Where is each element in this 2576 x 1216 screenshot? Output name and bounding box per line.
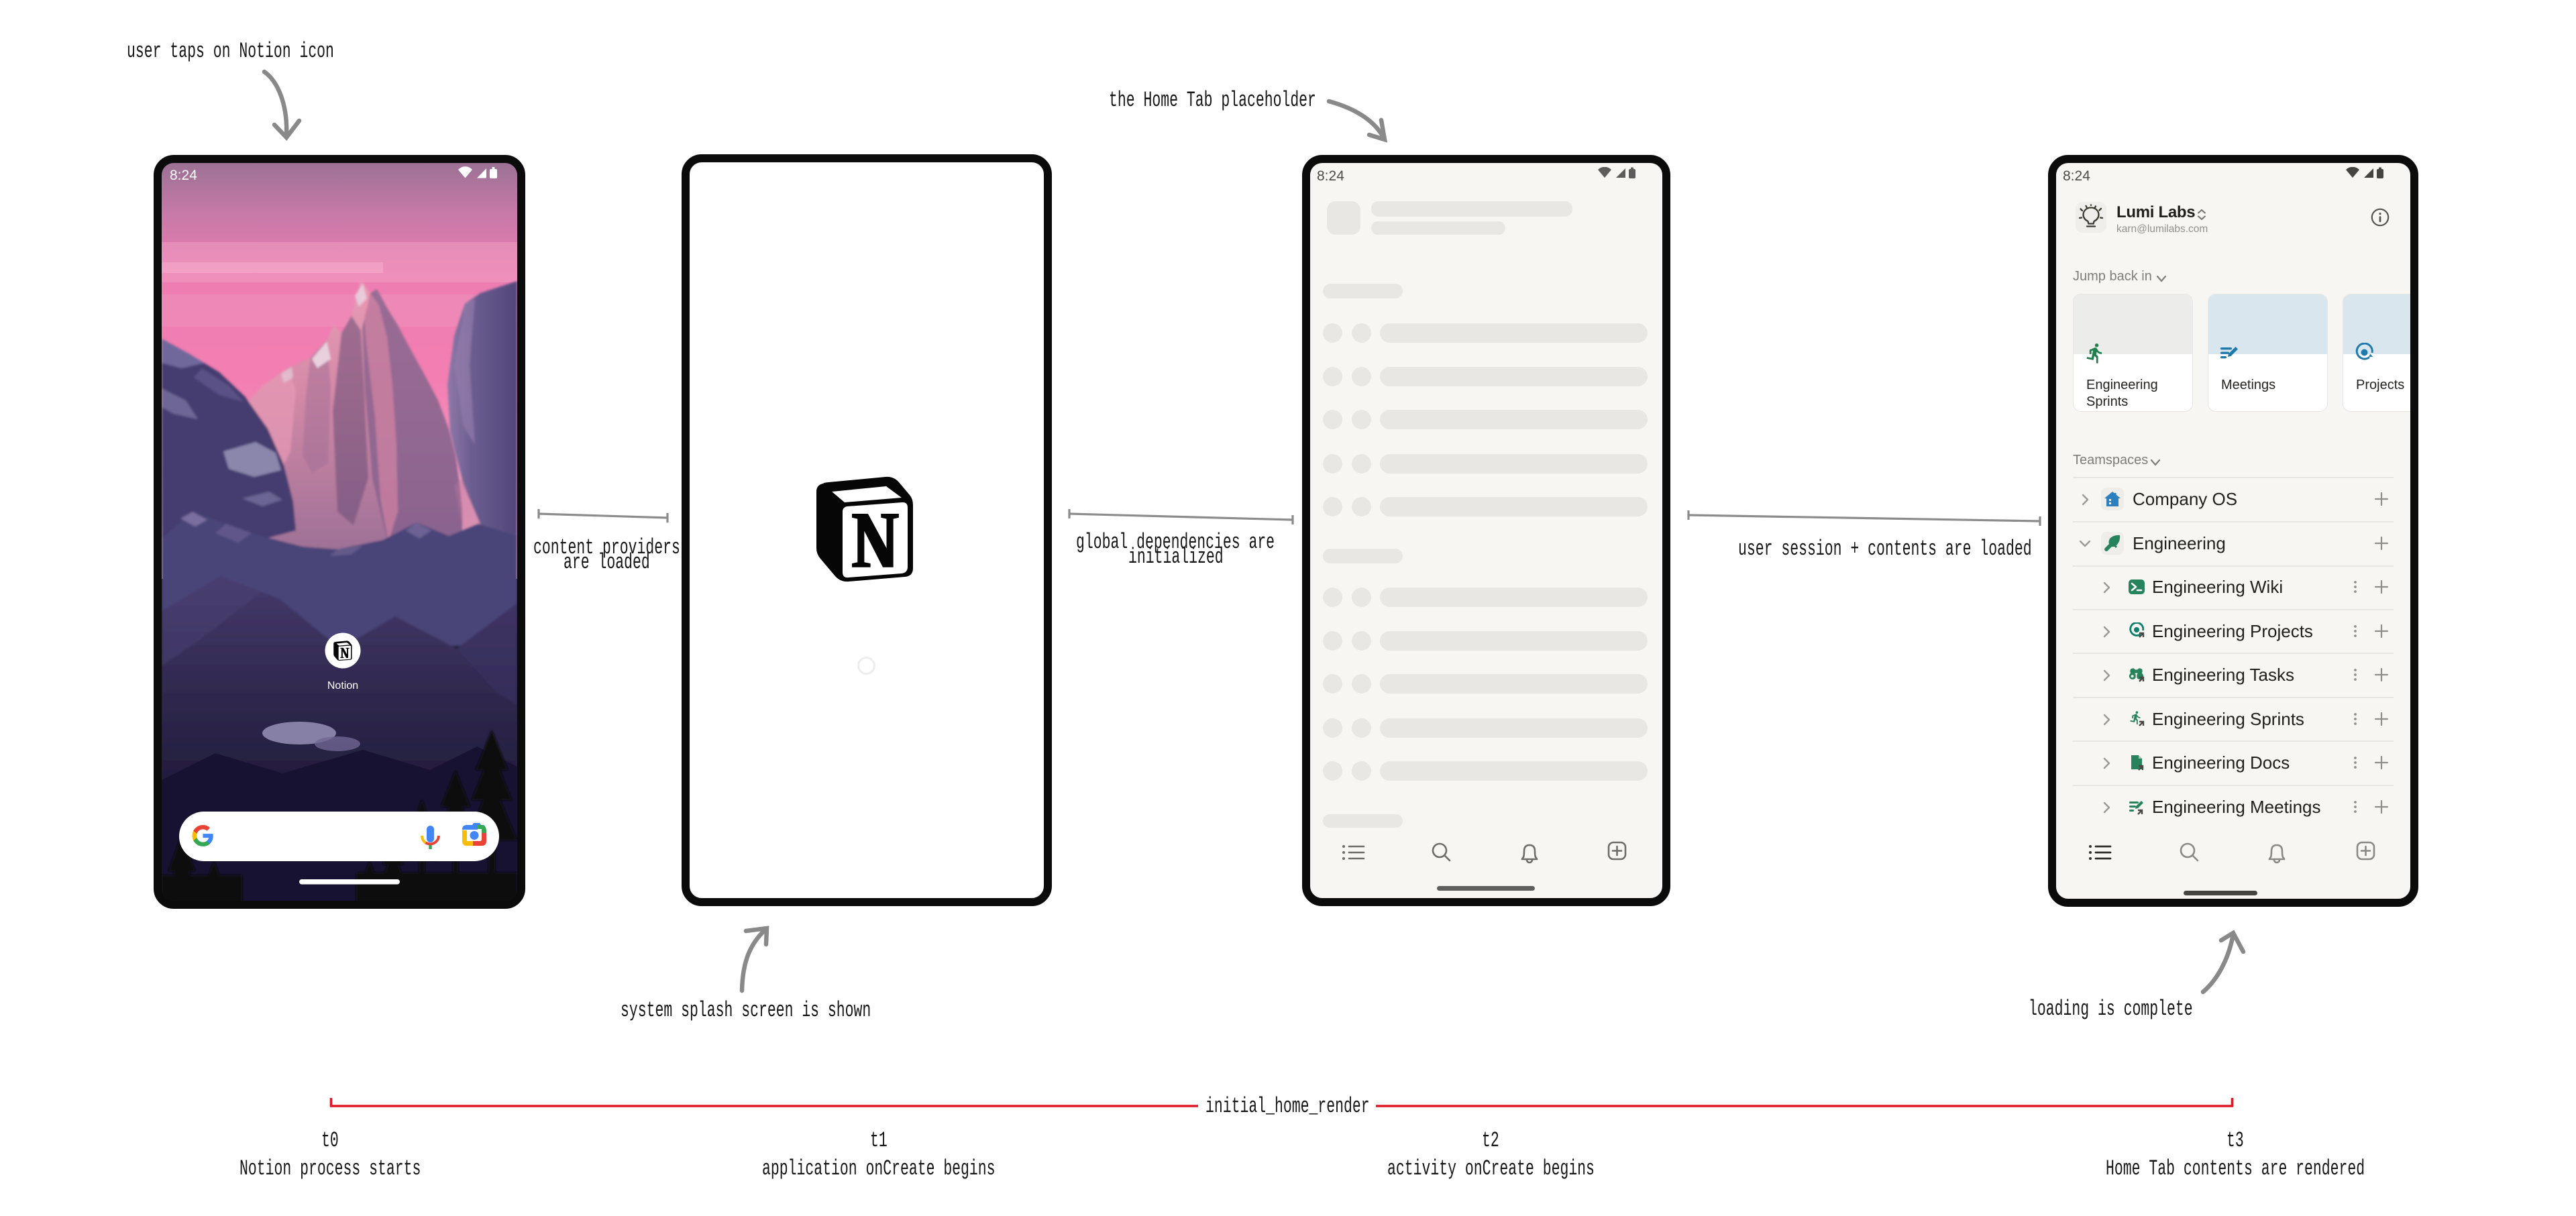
- svg-text:Notion: Notion: [327, 680, 358, 692]
- svg-text:8:24: 8:24: [170, 168, 197, 183]
